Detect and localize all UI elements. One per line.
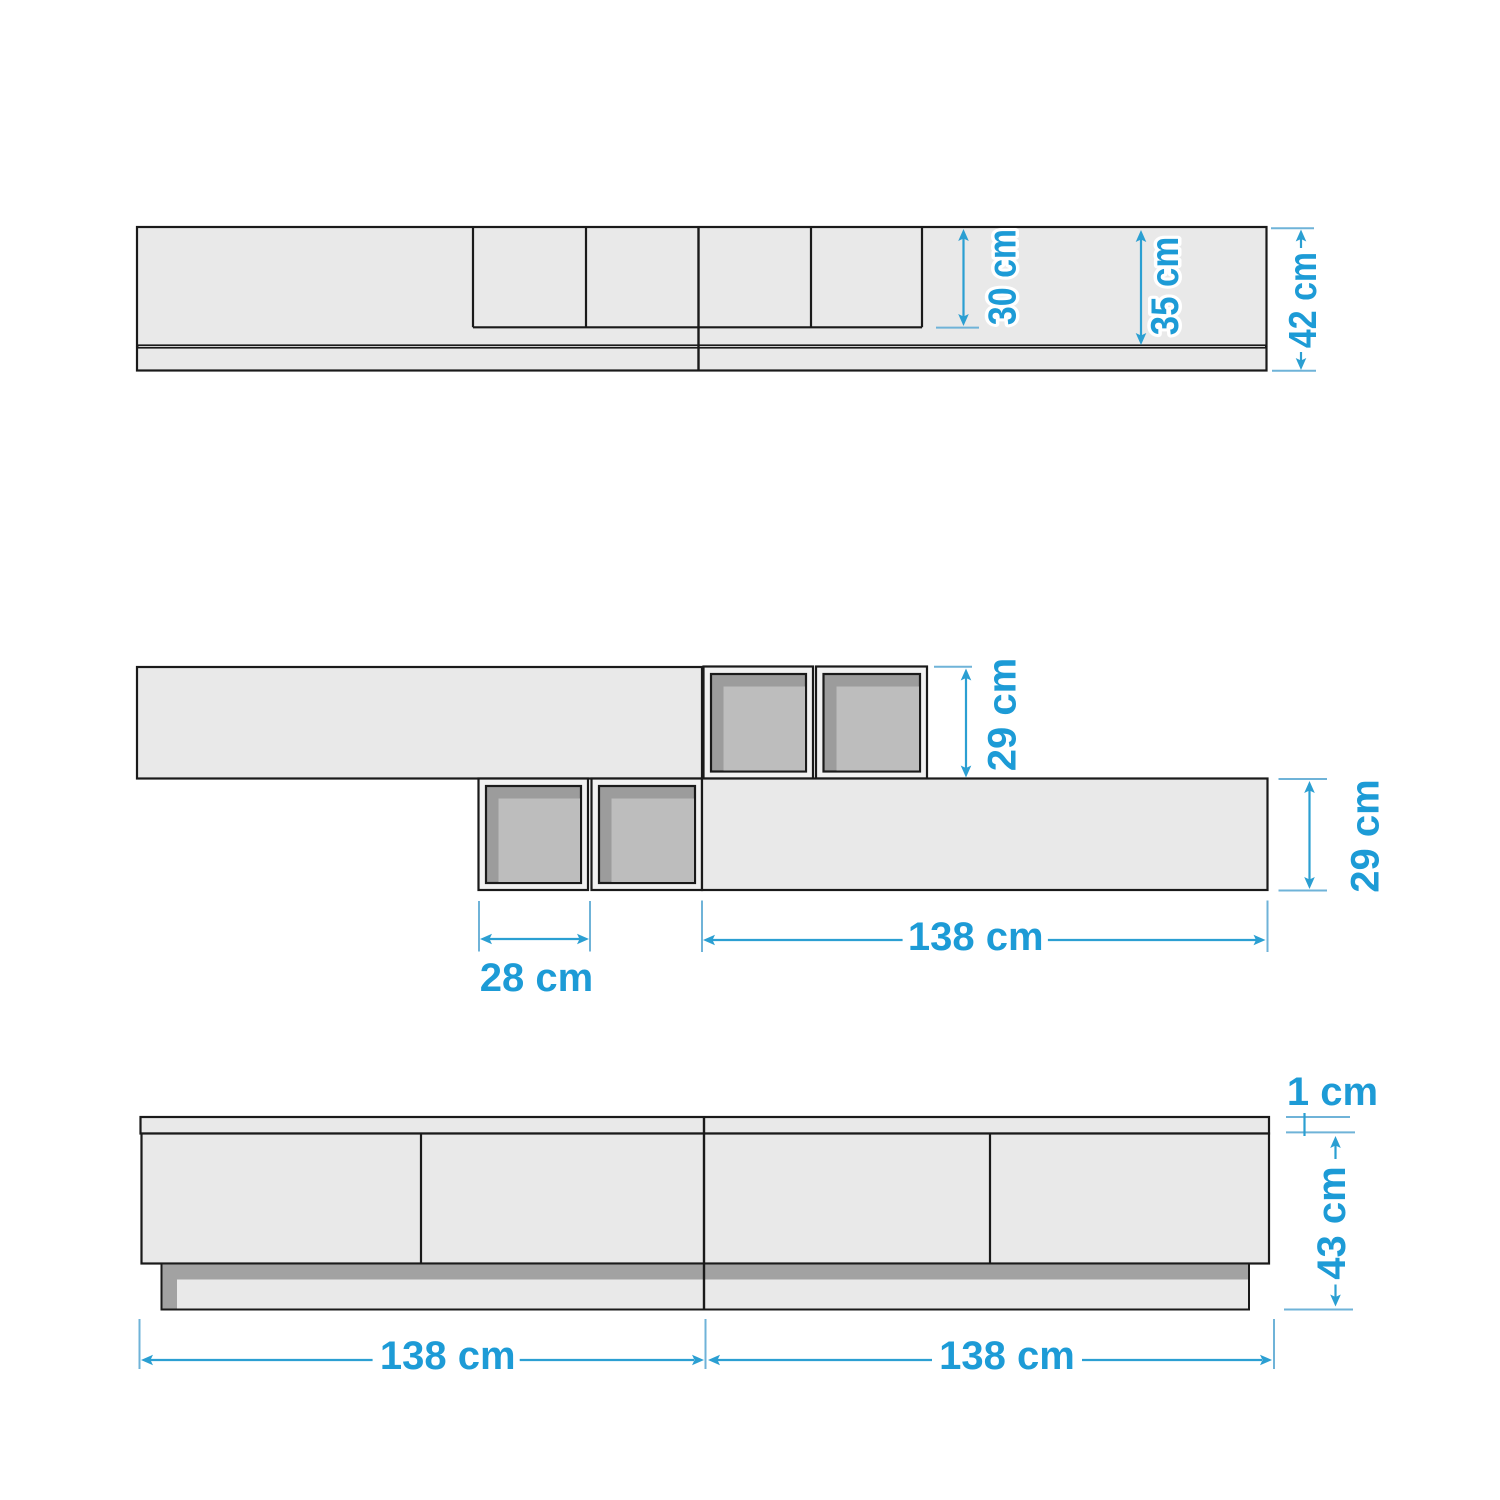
svg-text:138 cm: 138 cm: [908, 915, 1044, 959]
svg-text:29 cm: 29 cm: [980, 658, 1024, 771]
svg-text:42 cm: 42 cm: [1281, 252, 1325, 348]
svg-text:28 cm: 28 cm: [480, 956, 593, 1000]
svg-text:138 cm: 138 cm: [939, 1334, 1075, 1378]
svg-text:1 cm: 1 cm: [1287, 1070, 1378, 1114]
svg-text:29 cm: 29 cm: [1344, 779, 1388, 892]
svg-text:43 cm: 43 cm: [1310, 1166, 1354, 1279]
svg-text:35 cm: 35 cm: [1143, 237, 1186, 335]
svg-text:30 cm: 30 cm: [980, 229, 1024, 325]
svg-text:138 cm: 138 cm: [380, 1334, 516, 1378]
